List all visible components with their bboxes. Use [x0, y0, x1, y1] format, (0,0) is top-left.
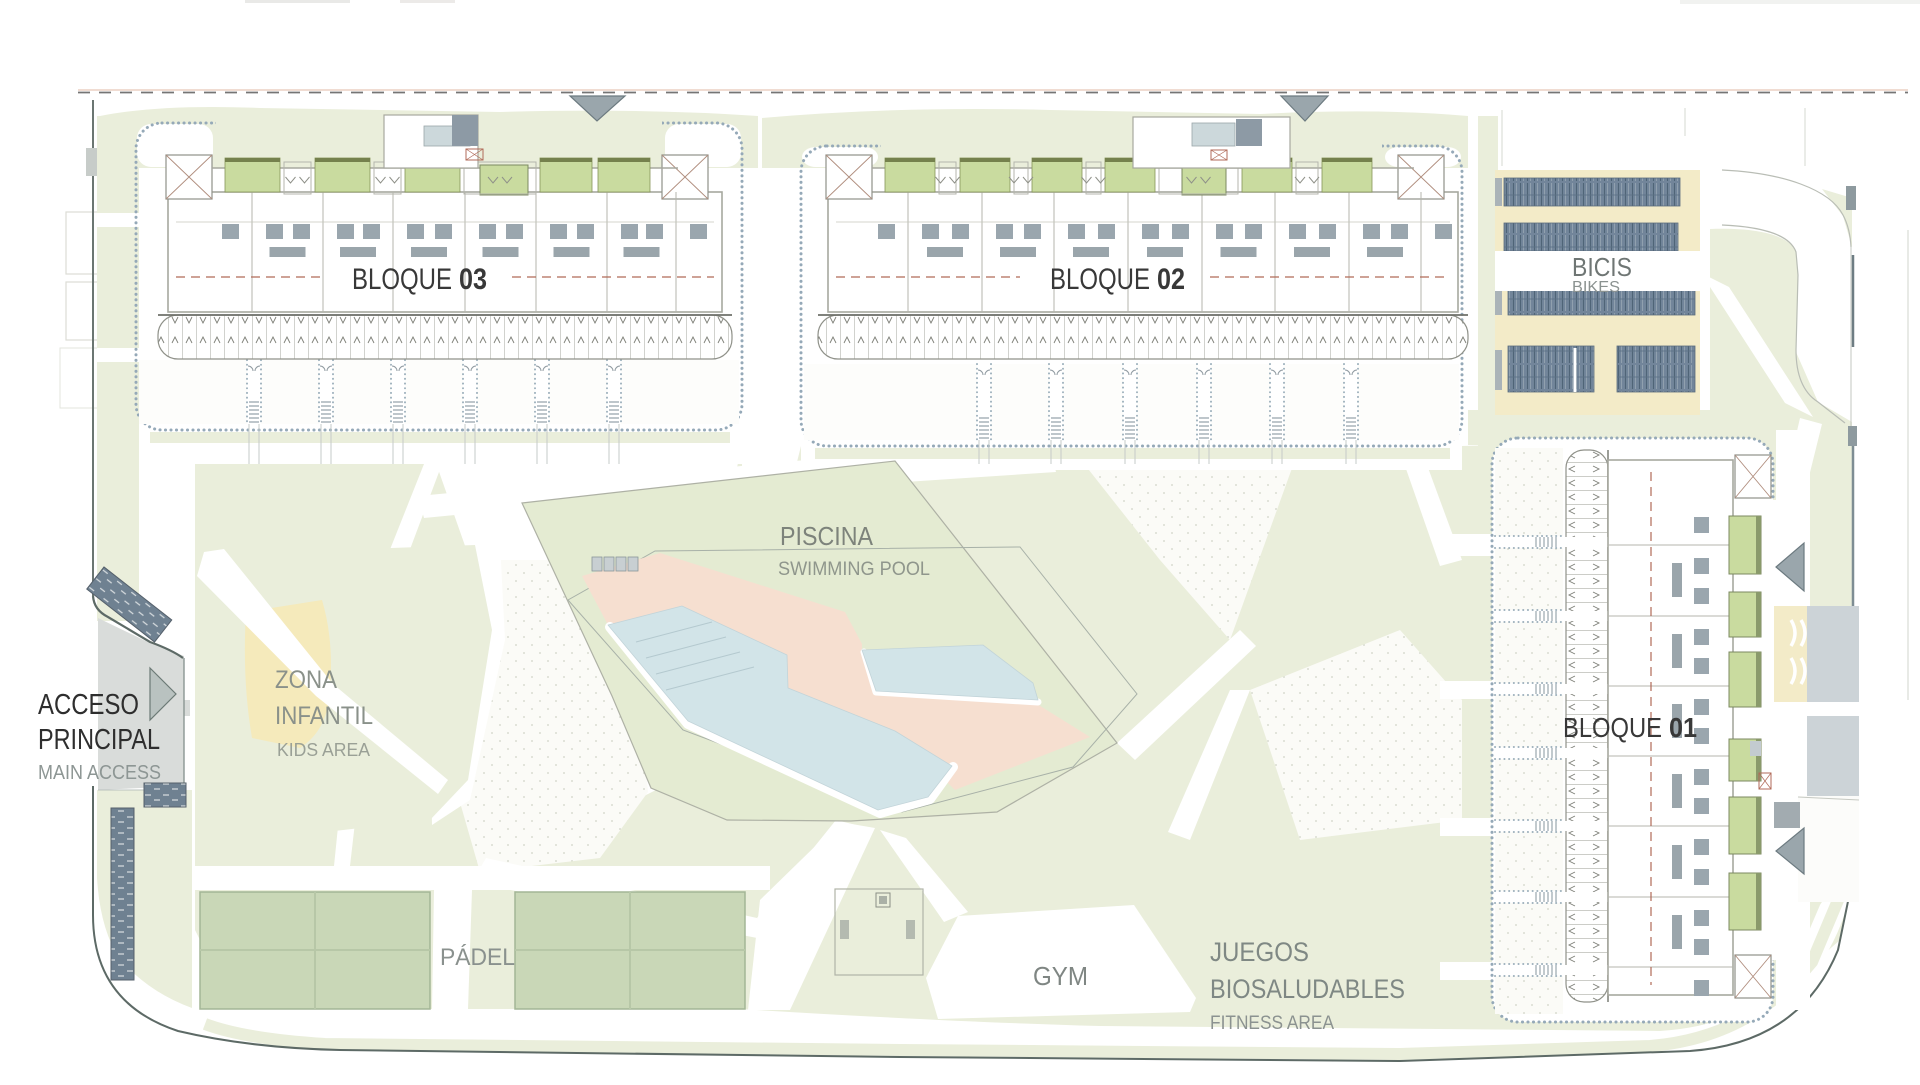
svg-text:KIDS AREA: KIDS AREA — [277, 740, 370, 760]
svg-text:PISCINA: PISCINA — [780, 521, 874, 551]
svg-text:MAIN ACCESS: MAIN ACCESS — [38, 762, 161, 784]
svg-text:FITNESS AREA: FITNESS AREA — [1210, 1013, 1334, 1034]
svg-text:BLOQUE: BLOQUE — [1050, 263, 1150, 296]
svg-text:ZONA: ZONA — [275, 666, 337, 694]
svg-text:PÁDEL: PÁDEL — [440, 944, 515, 971]
svg-text:BLOQUE: BLOQUE — [352, 263, 452, 296]
svg-text:INFANTIL: INFANTIL — [275, 702, 373, 730]
svg-text:BLOQUE: BLOQUE — [1563, 712, 1662, 743]
svg-text:BICIS: BICIS — [1572, 252, 1632, 282]
svg-text:BIOSALUDABLES: BIOSALUDABLES — [1210, 974, 1405, 1004]
svg-text:SWIMMING POOL: SWIMMING POOL — [778, 559, 930, 580]
svg-text:03: 03 — [459, 263, 487, 296]
svg-text:GYM: GYM — [1033, 961, 1088, 991]
svg-text:ACCESO: ACCESO — [38, 689, 139, 721]
svg-text:JUEGOS: JUEGOS — [1210, 937, 1309, 967]
svg-text:BIKES: BIKES — [1572, 279, 1620, 296]
svg-text:PRINCIPAL: PRINCIPAL — [38, 724, 160, 756]
svg-text:01: 01 — [1669, 712, 1697, 743]
svg-text:02: 02 — [1157, 263, 1185, 296]
